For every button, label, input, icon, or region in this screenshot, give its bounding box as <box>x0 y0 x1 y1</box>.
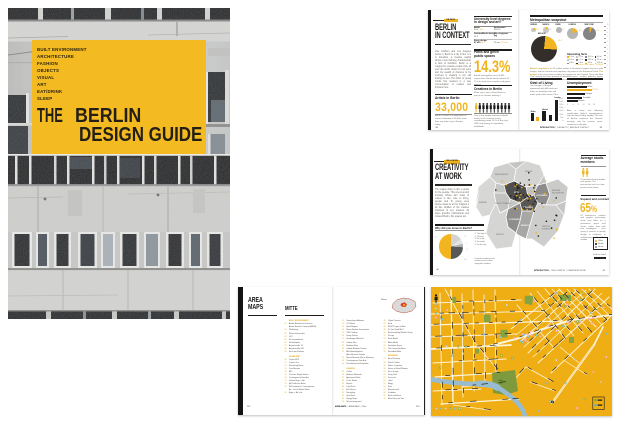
svg-text:STEGLITZ: STEGLITZ <box>496 234 504 236</box>
svg-text:LICHTENBERG: LICHTENBERG <box>536 195 548 197</box>
svg-text:TREPTOW-: TREPTOW- <box>542 226 551 228</box>
svg-text:REINICKENDORF: REINICKENDORF <box>495 174 508 176</box>
svg-text:HELLERSDORF: HELLERSDORF <box>552 192 564 194</box>
